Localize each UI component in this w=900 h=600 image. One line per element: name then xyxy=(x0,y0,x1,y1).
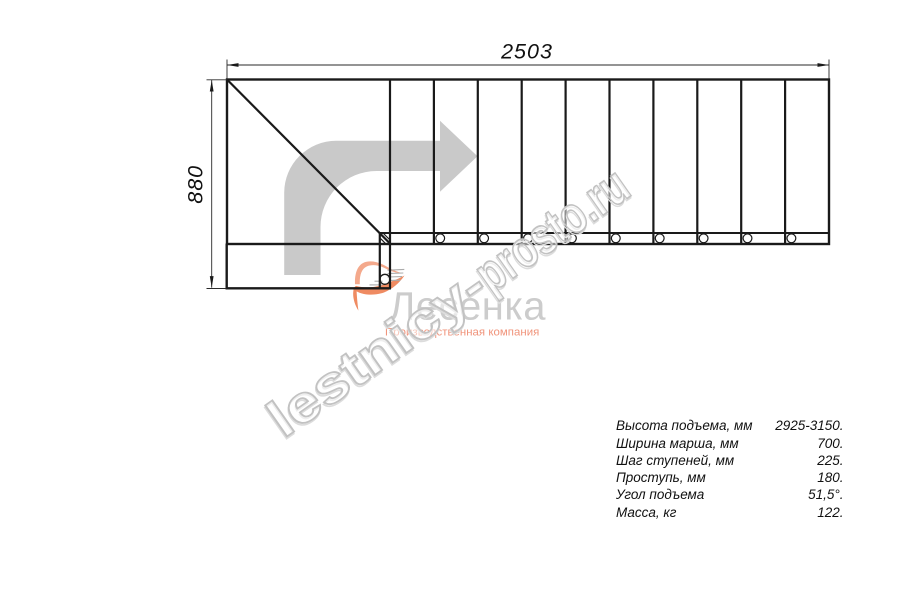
svg-text:880: 880 xyxy=(184,165,208,204)
svg-text:prosto.ru: prosto.ru xyxy=(464,156,640,304)
svg-text:2503: 2503 xyxy=(500,40,553,64)
